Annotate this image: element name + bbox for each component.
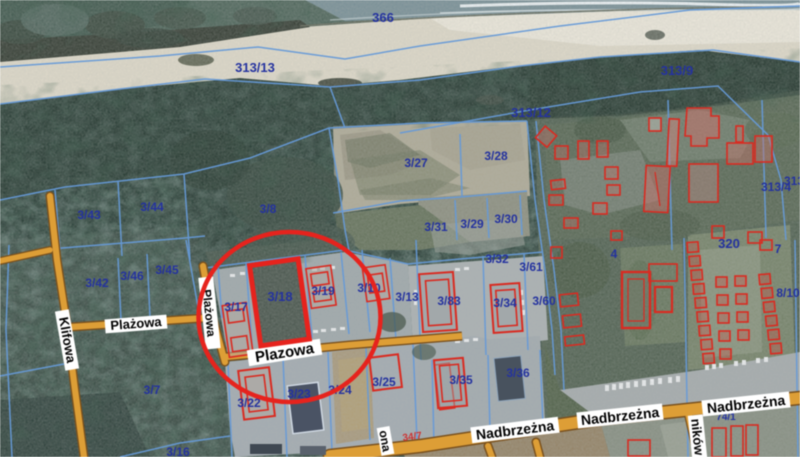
svg-text:320: 320 xyxy=(718,236,740,251)
svg-text:3/19: 3/19 xyxy=(311,284,335,298)
svg-text:313/9: 313/9 xyxy=(661,63,694,78)
svg-text:4: 4 xyxy=(611,247,618,261)
svg-text:3/43: 3/43 xyxy=(77,208,101,222)
svg-text:313/12: 313/12 xyxy=(511,105,551,120)
svg-text:3/35: 3/35 xyxy=(449,373,473,387)
svg-text:3/29: 3/29 xyxy=(460,217,484,231)
svg-text:3/18: 3/18 xyxy=(267,289,292,304)
svg-text:366: 366 xyxy=(372,10,394,25)
svg-text:3/13: 3/13 xyxy=(395,290,419,304)
svg-text:313/13: 313/13 xyxy=(235,60,275,75)
svg-text:3/34: 3/34 xyxy=(493,296,517,310)
svg-text:3/27: 3/27 xyxy=(404,156,428,170)
svg-text:3/83: 3/83 xyxy=(437,294,461,308)
svg-text:3/31: 3/31 xyxy=(424,220,448,234)
svg-text:313: 313 xyxy=(784,174,800,188)
svg-text:3/46: 3/46 xyxy=(120,269,144,283)
svg-text:3/17: 3/17 xyxy=(224,300,248,314)
svg-text:3/16: 3/16 xyxy=(166,445,190,457)
svg-text:3/7: 3/7 xyxy=(144,383,161,397)
svg-text:3/45: 3/45 xyxy=(155,263,179,277)
svg-text:3/25: 3/25 xyxy=(372,375,396,389)
svg-text:3/42: 3/42 xyxy=(85,276,109,290)
svg-text:3/28: 3/28 xyxy=(484,149,508,163)
svg-text:8/10: 8/10 xyxy=(776,286,800,300)
svg-text:3/36: 3/36 xyxy=(506,366,530,380)
svg-text:3/44: 3/44 xyxy=(140,200,164,214)
svg-text:3/60: 3/60 xyxy=(532,294,556,308)
svg-text:7: 7 xyxy=(775,242,782,256)
svg-text:3/32: 3/32 xyxy=(485,252,509,266)
svg-text:3/8: 3/8 xyxy=(260,202,277,216)
svg-text:3/30: 3/30 xyxy=(494,212,518,226)
svg-text:3/61: 3/61 xyxy=(519,260,543,274)
